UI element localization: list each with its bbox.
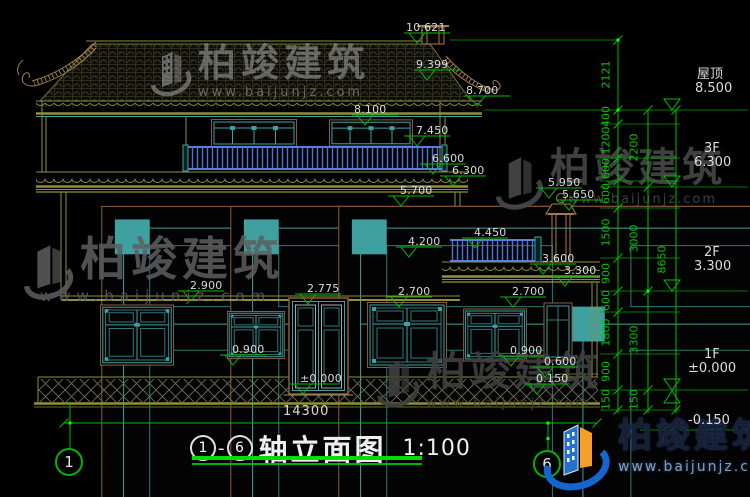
level-marks — [178, 33, 602, 394]
level-2700-b: 2.700 — [512, 285, 545, 298]
floor-roof-label: 屋顶 — [697, 63, 723, 82]
floor-1f-level: ±0.000 — [688, 361, 736, 376]
brand-url-text: www.baijunjz.com — [618, 459, 750, 475]
level-5650: 5.650 — [562, 188, 595, 201]
chain-dim: 3000 — [628, 209, 641, 269]
level-9399: 9.399 — [416, 58, 449, 71]
level-4200: 4.200 — [408, 235, 441, 248]
floor-below-level: -0.150 — [688, 413, 730, 428]
level-7450: 7.450 — [416, 124, 449, 137]
cad-drawing-canvas[interactable]: 柏竣建筑 www.baijunjz.com 柏竣建筑 www.baijunjz.… — [0, 0, 750, 497]
floor-roof-level: 8.500 — [695, 81, 732, 96]
floor-2f-level: 3.300 — [694, 259, 731, 274]
floor-2f-label: 2F — [704, 245, 720, 260]
level-8100: 8.100 — [354, 103, 387, 116]
level-zero: ±0.000 — [300, 372, 342, 385]
level-3300: 3.300 — [564, 264, 597, 277]
level-2700-a: 2.700 — [398, 285, 431, 298]
level-0900-a: 0.900 — [232, 343, 265, 356]
dimension-chains — [614, 36, 681, 415]
floor-3f-level: 6.300 — [694, 155, 731, 170]
floor-1f-label: 1F — [704, 347, 720, 362]
floor-3f-label: 3F — [704, 141, 720, 156]
chain-dim: 3300 — [628, 310, 641, 370]
level-8700: 8.700 — [466, 84, 499, 97]
axis-bubble-1: 1 — [55, 448, 83, 476]
chain-dim: 2200 — [628, 118, 641, 178]
brand-name-text: 柏竣建筑 — [618, 418, 750, 455]
chain-dim: 8650 — [656, 230, 669, 290]
level-0600: 0.600 — [544, 355, 577, 368]
title-underline-thin — [192, 463, 422, 465]
overall-width-dim: 14300 — [283, 404, 329, 419]
level-0150: 0.150 — [536, 372, 569, 385]
title-underline-thick — [192, 456, 422, 460]
brand-logo-icon — [536, 418, 612, 492]
brand-logo-block: 柏竣建筑 www.baijunjz.com — [536, 418, 750, 492]
level-6300: 6.300 — [452, 164, 485, 177]
level-2775: 2.775 — [307, 282, 340, 295]
level-0900-b: 0.900 — [510, 344, 543, 357]
level-5700: 5.700 — [400, 184, 433, 197]
level-4450: 4.450 — [474, 226, 507, 239]
level-10621: 10.621 — [406, 21, 446, 34]
level-2900: 2.900 — [190, 279, 223, 292]
